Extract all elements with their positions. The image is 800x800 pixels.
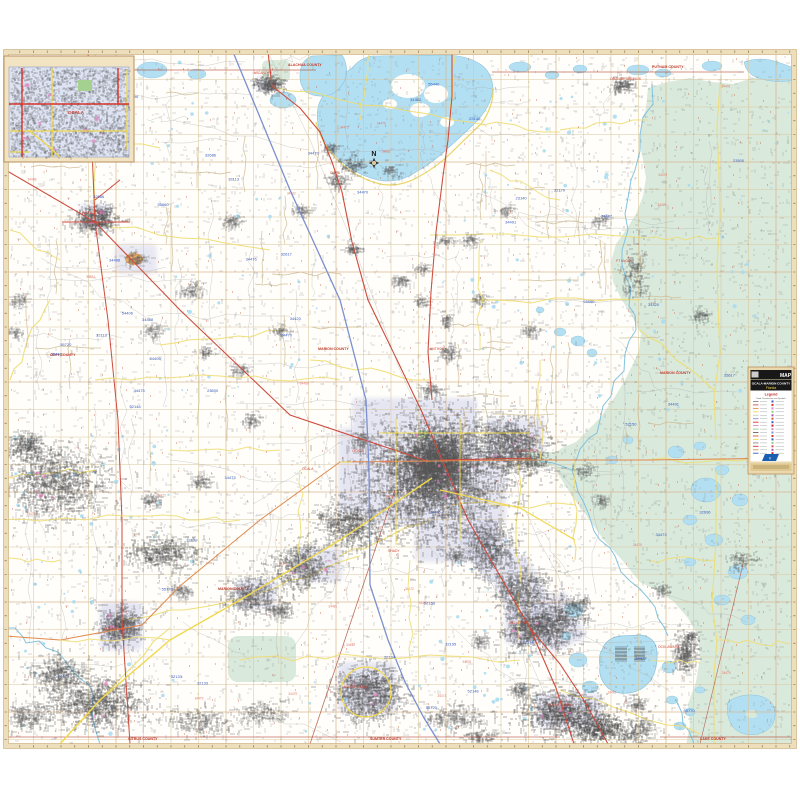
svg-text:55660: 55660 xyxy=(158,202,170,207)
svg-text:34479: 34479 xyxy=(635,655,647,660)
svg-text:34475: 34475 xyxy=(340,125,349,129)
svg-text:52150: 52150 xyxy=(424,600,436,605)
svg-text:ORANGE SPRINGS: ORANGE SPRINGS xyxy=(610,77,642,81)
svg-text:34476: 34476 xyxy=(430,509,442,514)
svg-text:SUMMERFIELD: SUMMERFIELD xyxy=(548,703,573,707)
svg-text:34488: 34488 xyxy=(300,382,309,386)
svg-text:32195: 32195 xyxy=(445,641,457,646)
svg-text:DUNNELLON: DUNNELLON xyxy=(104,627,125,631)
svg-text:34470: 34470 xyxy=(279,562,288,566)
svg-text:34472: 34472 xyxy=(405,587,414,591)
svg-text:52148: 52148 xyxy=(130,404,142,409)
svg-text:MARION COUNTY: MARION COUNTY xyxy=(218,587,249,591)
svg-text:32113: 32113 xyxy=(96,333,108,338)
svg-text:34473: 34473 xyxy=(225,475,237,480)
svg-text:34471: 34471 xyxy=(608,691,617,695)
svg-text:23140: 23140 xyxy=(516,196,528,201)
svg-text:34476: 34476 xyxy=(721,85,730,89)
svg-text:34432: 34432 xyxy=(346,643,355,647)
svg-text:SHADY: SHADY xyxy=(388,549,400,553)
svg-text:32686: 32686 xyxy=(93,194,105,199)
svg-text:34471: 34471 xyxy=(437,694,446,698)
svg-text:FT McCOY: FT McCOY xyxy=(616,259,634,263)
svg-text:34481: 34481 xyxy=(86,275,95,279)
svg-text:32134: 32134 xyxy=(523,640,535,645)
svg-text:34488: 34488 xyxy=(142,317,154,322)
svg-text:34476: 34476 xyxy=(246,256,258,261)
svg-text:LAKE COUNTY: LAKE COUNTY xyxy=(700,737,727,741)
svg-text:34482: 34482 xyxy=(601,213,613,218)
svg-text:55660: 55660 xyxy=(583,299,595,304)
svg-text:OCALA: OCALA xyxy=(302,467,314,471)
svg-text:32179: 32179 xyxy=(186,538,198,543)
svg-text:32617: 32617 xyxy=(724,372,736,377)
svg-text:MAP: MAP xyxy=(780,373,792,379)
svg-text:BELLEVIEW: BELLEVIEW xyxy=(510,621,530,625)
svg-text:32617: 32617 xyxy=(281,252,293,257)
svg-text:34476: 34476 xyxy=(462,660,471,664)
svg-text:34472: 34472 xyxy=(157,494,166,498)
svg-text:54406: 54406 xyxy=(122,311,134,316)
svg-text:CITRA: CITRA xyxy=(330,171,341,175)
svg-text:34491: 34491 xyxy=(505,220,517,225)
svg-text:OCALA-MARION COUNTY: OCALA-MARION COUNTY xyxy=(752,382,791,386)
svg-text:55720: 55720 xyxy=(60,342,72,347)
svg-text:34491: 34491 xyxy=(668,402,680,407)
svg-text:34481: 34481 xyxy=(328,605,337,609)
svg-text:OCALA: OCALA xyxy=(352,449,364,453)
svg-text:54406: 54406 xyxy=(150,356,162,361)
svg-text:34475: 34475 xyxy=(134,388,146,393)
svg-text:32113: 32113 xyxy=(228,177,240,182)
svg-text:32696: 32696 xyxy=(699,510,711,515)
svg-text:32686: 32686 xyxy=(205,152,217,157)
svg-text:WILLISTON: WILLISTON xyxy=(82,211,101,215)
svg-text:SUMTER COUNTY: SUMTER COUNTY xyxy=(370,737,402,741)
svg-text:34473: 34473 xyxy=(656,532,668,537)
svg-text:32133: 32133 xyxy=(197,680,209,685)
svg-text:Florida: Florida xyxy=(766,386,776,390)
svg-text:OCALA: OCALA xyxy=(68,110,85,115)
svg-text:ANTHONY: ANTHONY xyxy=(430,347,447,351)
svg-text:34475: 34475 xyxy=(633,543,642,547)
svg-text:34432: 34432 xyxy=(385,494,394,498)
svg-text:34470: 34470 xyxy=(357,190,369,195)
svg-text:MARION OAKS: MARION OAKS xyxy=(344,685,369,689)
svg-text:34432: 34432 xyxy=(382,150,391,154)
svg-text:ALACHUA COUNTY: ALACHUA COUNTY xyxy=(288,63,322,67)
svg-text:34475: 34475 xyxy=(58,674,70,679)
svg-text:SILVER SPGS: SILVER SPGS xyxy=(516,449,539,453)
svg-text:CITRUS COUNTY: CITRUS COUNTY xyxy=(128,737,158,741)
svg-text:34470: 34470 xyxy=(722,671,731,675)
svg-text:34471: 34471 xyxy=(27,512,36,516)
svg-text:34476: 34476 xyxy=(382,460,391,464)
svg-text:55440: 55440 xyxy=(428,82,440,87)
svg-text:32133: 32133 xyxy=(171,674,183,679)
svg-text:55770: 55770 xyxy=(684,708,696,713)
svg-text:MICANOPY: MICANOPY xyxy=(254,71,273,75)
svg-text:34479: 34479 xyxy=(377,121,386,125)
svg-text:23500: 23500 xyxy=(733,158,745,163)
svg-text:OCKLAWAHA: OCKLAWAHA xyxy=(658,645,680,649)
svg-text:23500: 23500 xyxy=(207,388,219,393)
svg-text:55720: 55720 xyxy=(426,705,438,710)
svg-text:PUTNAM COUNTY: PUTNAM COUNTY xyxy=(652,65,684,69)
svg-text:MARION COUNTY: MARION COUNTY xyxy=(660,371,691,375)
svg-text:34420: 34420 xyxy=(290,316,302,321)
svg-text:34420: 34420 xyxy=(648,302,660,307)
svg-text:34479: 34479 xyxy=(195,696,204,700)
svg-text:32134: 32134 xyxy=(384,654,396,659)
svg-text:23140: 23140 xyxy=(469,116,481,121)
svg-text:55440: 55440 xyxy=(51,351,63,356)
svg-text:34432: 34432 xyxy=(287,192,296,196)
svg-text:34470: 34470 xyxy=(308,150,320,155)
svg-text:34488: 34488 xyxy=(109,257,121,262)
svg-text:55770: 55770 xyxy=(162,587,174,592)
svg-text:32179: 32179 xyxy=(554,188,566,193)
svg-text:34479: 34479 xyxy=(658,173,667,177)
svg-text:34479: 34479 xyxy=(288,692,297,696)
svg-text:34479: 34479 xyxy=(658,203,667,207)
svg-text:52148: 52148 xyxy=(468,688,480,693)
svg-text:Road Classification and Symbol: Road Classification and Symbols xyxy=(756,397,785,400)
svg-text:MARION COUNTY: MARION COUNTY xyxy=(318,347,349,351)
svg-text:N: N xyxy=(371,151,376,158)
svg-text:Legend: Legend xyxy=(765,393,778,397)
svg-text:34479: 34479 xyxy=(281,333,293,338)
svg-text:52150: 52150 xyxy=(625,421,637,426)
svg-text:34482: 34482 xyxy=(410,97,422,102)
svg-text:34488: 34488 xyxy=(28,178,37,182)
